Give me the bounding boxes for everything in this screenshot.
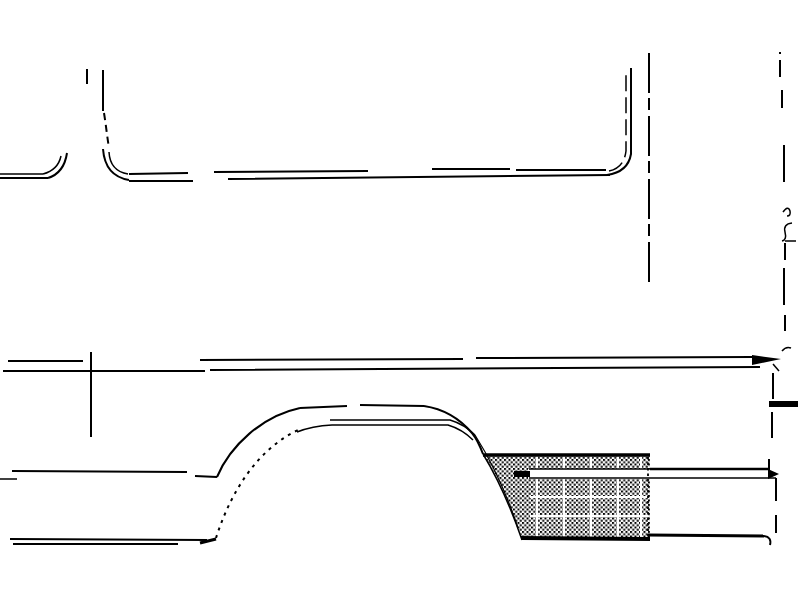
beltline-lower xyxy=(129,175,610,181)
rear-cut-line-mid xyxy=(784,243,785,331)
arch-outer-top-dashed xyxy=(300,405,424,408)
quarter-sill-bottom xyxy=(648,535,764,536)
rear-hinge-upper xyxy=(783,208,790,216)
arch-outer-left xyxy=(217,408,300,477)
rear-corner-squiggle xyxy=(782,347,791,351)
panel-molding-end-cap xyxy=(514,471,530,477)
beltline-upper xyxy=(129,169,606,174)
rear-window-corner-outer xyxy=(607,68,631,175)
rear-hinge-lower xyxy=(782,223,792,241)
arch-flange-lower xyxy=(297,425,473,440)
rear-window-corner-inner xyxy=(609,72,626,171)
parts-diagram-page xyxy=(0,0,800,600)
sill-top-line xyxy=(12,471,217,477)
molding-lower xyxy=(3,367,760,371)
sill-bottom-upper xyxy=(10,539,207,540)
molding-end-arrow xyxy=(752,355,781,365)
mid-window-corner-outer xyxy=(103,149,129,180)
window-divider-dashes xyxy=(104,113,109,148)
arch-outer-right xyxy=(424,406,483,454)
molding-upper xyxy=(8,357,752,361)
panel-bottom-edge xyxy=(521,538,650,539)
panel-diagram-svg xyxy=(0,0,800,600)
quarter-sill-hook xyxy=(764,536,770,545)
arch-inner-dotted xyxy=(216,430,298,538)
molding-end-tick xyxy=(773,364,779,371)
drawing-strokes xyxy=(0,52,798,545)
rear-cut-line-top xyxy=(780,52,784,182)
